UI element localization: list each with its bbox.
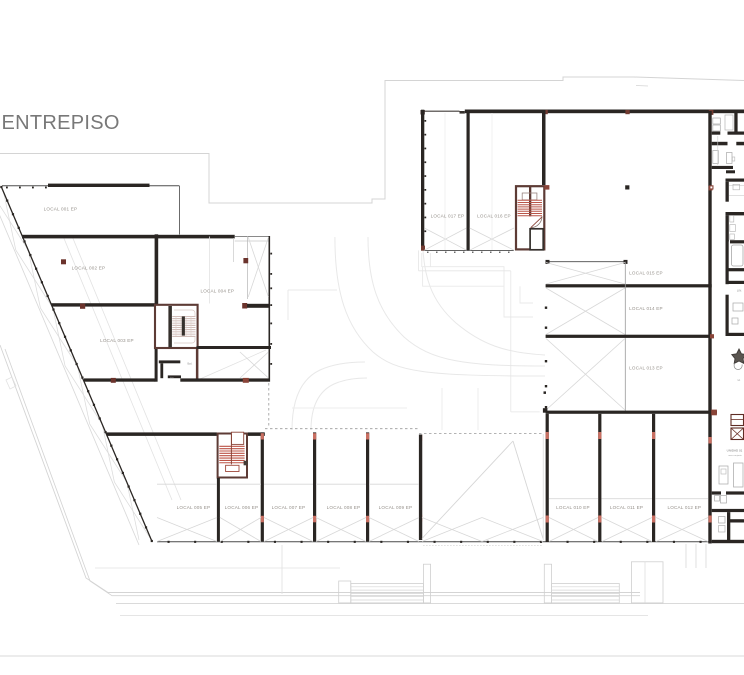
svg-text:LOCAL 017 EP: LOCAL 017 EP bbox=[431, 214, 465, 219]
svg-text:LOCAL 011 EP: LOCAL 011 EP bbox=[610, 505, 643, 510]
svg-text:UNIDAD 01: UNIDAD 01 bbox=[727, 449, 743, 453]
svg-text:ENTREPISO: ENTREPISO bbox=[2, 112, 120, 134]
svg-text:LOCAL 006 EP: LOCAL 006 EP bbox=[225, 505, 259, 510]
svg-text:LOCAL 010 EP: LOCAL 010 EP bbox=[556, 505, 590, 510]
svg-text:dep.: dep. bbox=[170, 377, 175, 379]
svg-text:LIN.: LIN. bbox=[737, 289, 742, 293]
svg-text:LOCAL 012 EP: LOCAL 012 EP bbox=[667, 505, 701, 510]
svg-text:LOCAL 016 EP: LOCAL 016 EP bbox=[477, 214, 511, 219]
svg-text:LOCAL 013 EP: LOCAL 013 EP bbox=[629, 365, 663, 370]
svg-text:LOCAL 002 EP: LOCAL 002 EP bbox=[72, 266, 106, 271]
svg-text:LOCAL 009 EP: LOCAL 009 EP bbox=[379, 505, 413, 510]
svg-text:LOCAL 007 EP: LOCAL 007 EP bbox=[272, 505, 306, 510]
svg-text:H.: H. bbox=[738, 378, 741, 382]
svg-text:LOCAL 003 EP: LOCAL 003 EP bbox=[100, 338, 134, 343]
svg-text:LOCAL 014 EP: LOCAL 014 EP bbox=[629, 306, 663, 311]
svg-text:LOCAL 015 EP: LOCAL 015 EP bbox=[629, 270, 663, 275]
svg-text:LOCAL 001 EP: LOCAL 001 EP bbox=[44, 207, 78, 212]
svg-text:LOCAL 004 EP: LOCAL 004 EP bbox=[200, 289, 234, 294]
svg-text:LOCAL 005 EP: LOCAL 005 EP bbox=[177, 505, 211, 510]
svg-text:area conjunta: area conjunta bbox=[728, 454, 742, 457]
svg-text:Bod.: Bod. bbox=[188, 364, 193, 366]
svg-text:LOCAL 008 EP: LOCAL 008 EP bbox=[327, 505, 361, 510]
